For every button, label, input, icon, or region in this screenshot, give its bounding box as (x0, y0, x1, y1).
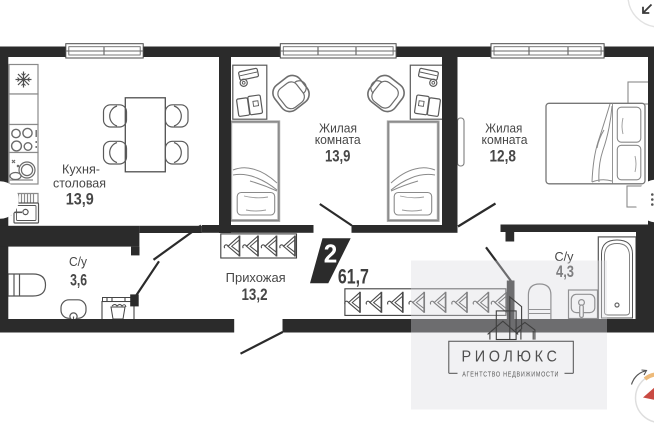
svg-text:2: 2 (324, 238, 338, 268)
svg-text:Прихожая: Прихожая (226, 271, 286, 285)
svg-text:РИОЛЮКС: РИОЛЮКС (462, 349, 561, 366)
svg-text:13,9: 13,9 (66, 191, 94, 209)
svg-text:12,8: 12,8 (489, 147, 516, 165)
svg-text:комната: комната (482, 133, 528, 147)
svg-text:С/у: С/у (69, 255, 88, 269)
svg-text:комната: комната (315, 133, 361, 147)
svg-text:13,2: 13,2 (242, 286, 268, 304)
svg-text:Кухня-: Кухня- (62, 163, 100, 177)
svg-text:61,7: 61,7 (338, 265, 369, 288)
svg-text:3,6: 3,6 (70, 272, 87, 290)
svg-text:столовая: столовая (53, 176, 106, 190)
svg-text:13,9: 13,9 (325, 147, 351, 165)
svg-text:АГЕНТСТВО НЕДВИЖИМОСТИ: АГЕНТСТВО НЕДВИЖИМОСТИ (462, 370, 559, 379)
